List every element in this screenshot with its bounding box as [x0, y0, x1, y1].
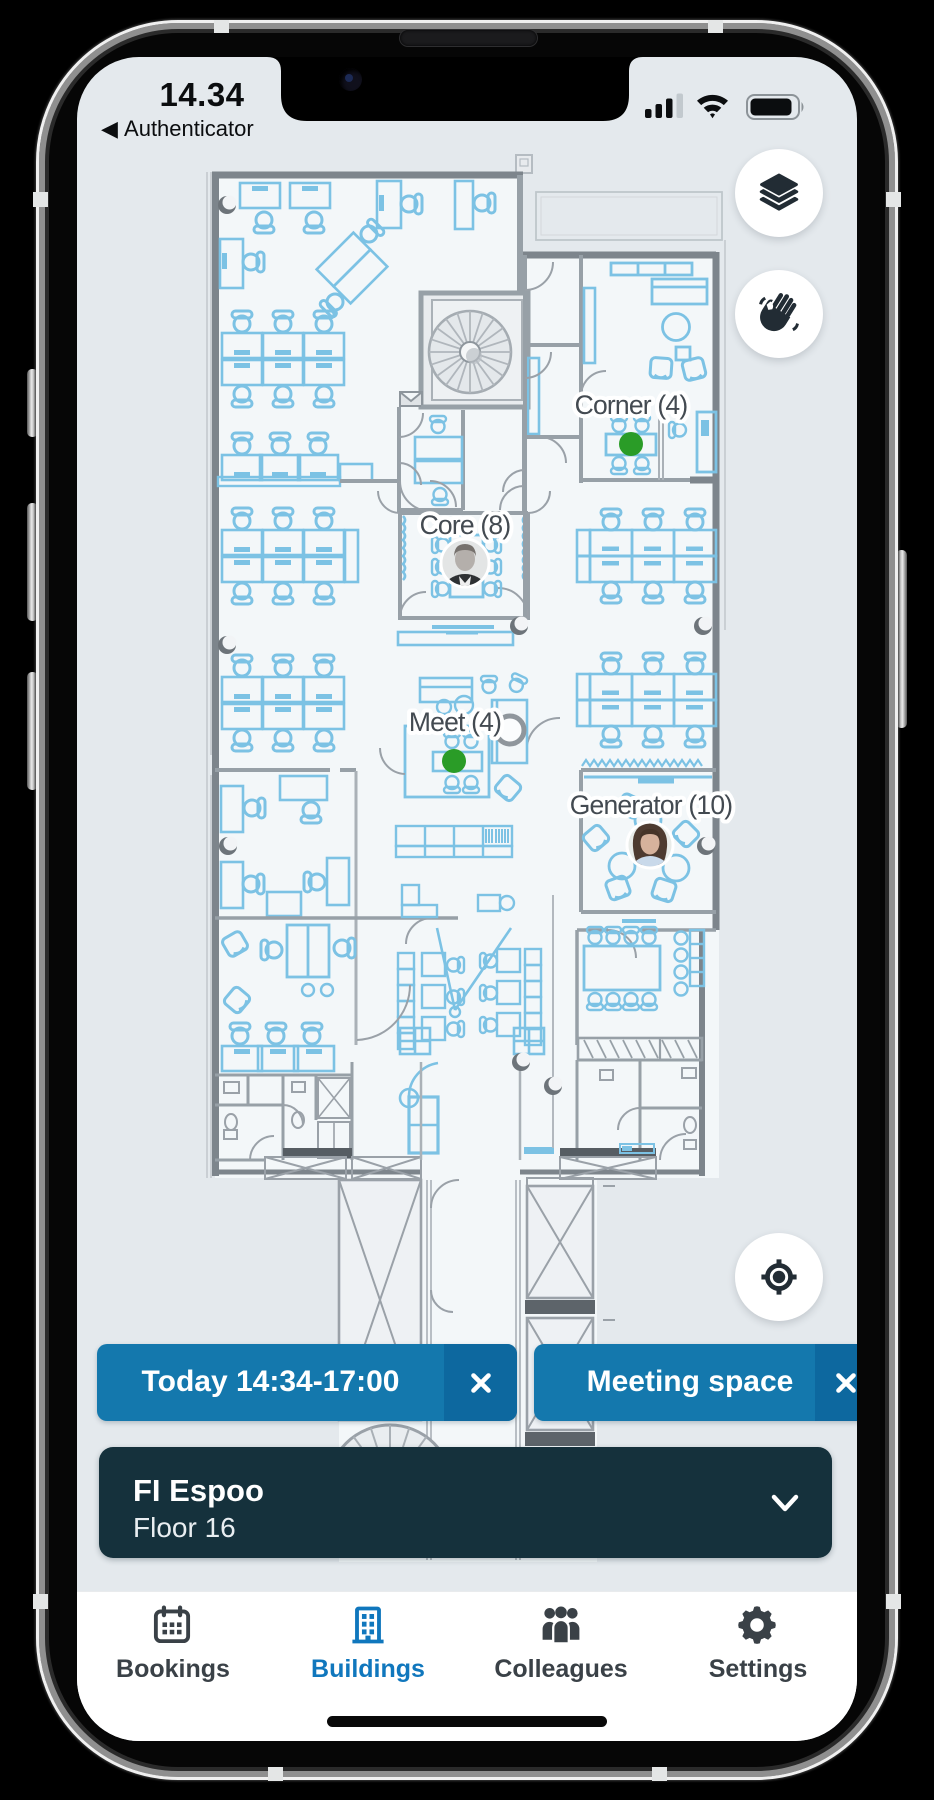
svg-text:Generator (10): Generator (10)	[570, 790, 733, 820]
svg-text:Corner (4): Corner (4)	[575, 390, 688, 420]
svg-text:Meet (4): Meet (4)	[409, 707, 501, 737]
svg-text:Core (8): Core (8)	[420, 510, 511, 540]
